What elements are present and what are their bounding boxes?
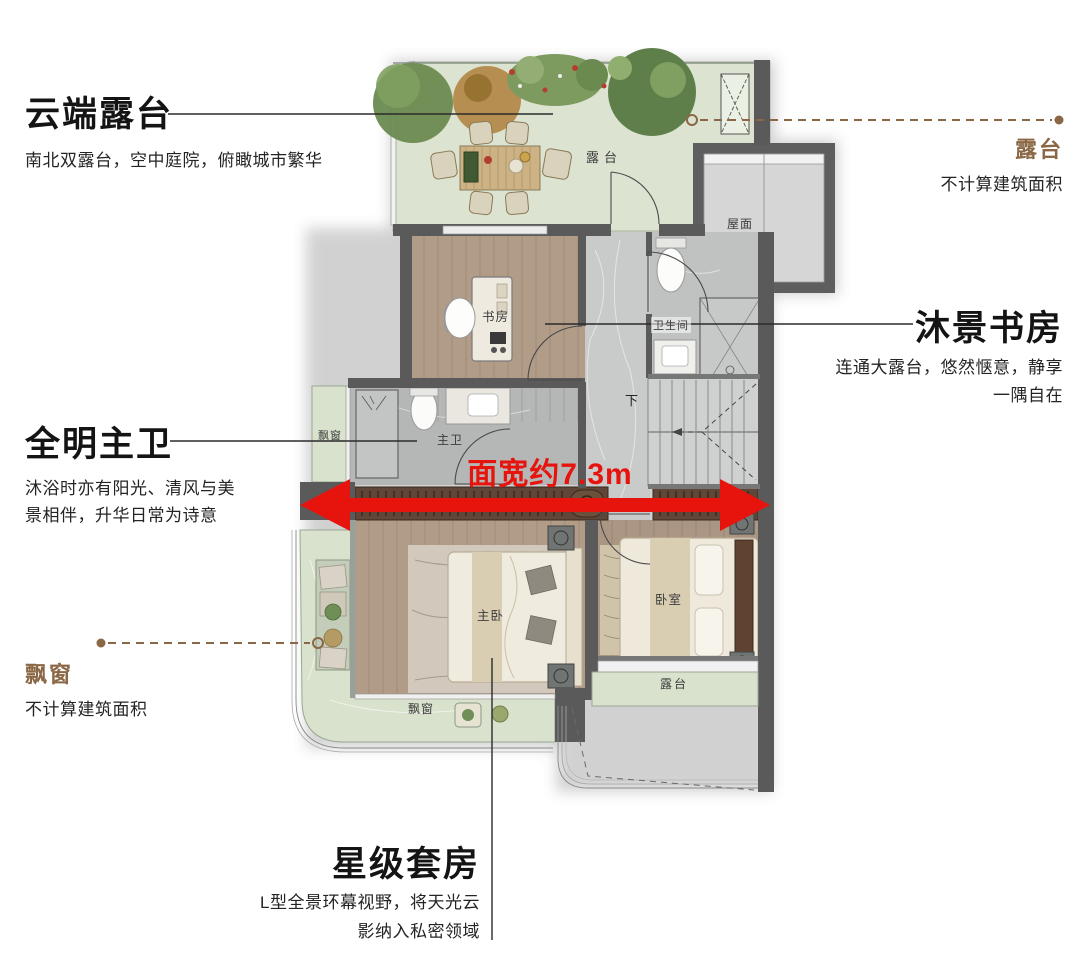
terrace-top-title: 云端露台 <box>25 86 173 137</box>
study-desc-1: 连通大露台，悠然惬意，静享 <box>836 353 1064 378</box>
suite-desc-2: 影纳入私密领域 <box>358 917 481 942</box>
room-label-bay-bottom: 飘窗 <box>408 700 434 717</box>
room-label-terrace: 露台 <box>586 147 622 166</box>
room-label-bay-left: 飘窗 <box>318 427 342 443</box>
room-label-roof: 屋面 <box>727 215 753 232</box>
suite-desc-1: L型全景环幕视野，将天光云 <box>260 888 480 913</box>
room-label-master-bedroom: 主卧 <box>477 605 504 624</box>
room-label-bedroom: 卧室 <box>655 589 682 608</box>
bay-window-desc: 不计算建筑面积 <box>25 695 148 720</box>
bay-window-title: 飘窗 <box>25 657 73 689</box>
terrace-top-desc: 南北双露台，空中庭院，俯瞰城市繁华 <box>25 146 323 171</box>
suite-title: 星级套房 <box>332 836 480 887</box>
master-bath-desc-1: 沐浴时亦有阳光、清风与美 <box>25 474 235 499</box>
terrace-right-title: 露台 <box>1015 132 1063 164</box>
skylight-symbol <box>721 74 749 134</box>
terrace-right-desc: 不计算建筑面积 <box>941 170 1064 195</box>
study-title: 沐景书房 <box>915 300 1063 351</box>
master-bath-title: 全明主卫 <box>25 416 173 467</box>
room-label-bathroom: 卫生间 <box>651 317 691 333</box>
master-bath-desc-2: 景相伴，升华日常为诗意 <box>25 501 218 526</box>
dimension-label: 面宽约7.3m <box>430 449 670 493</box>
floorplan-page: 云端露台 南北双露台，空中庭院，俯瞰城市繁华 露台 不计算建筑面积 沐景书房 连… <box>0 0 1080 977</box>
room-label-terrace-bottom: 露台 <box>660 675 688 692</box>
room-label-master-bath: 主卫 <box>437 431 463 448</box>
room-label-stairs-down: 下 <box>625 390 639 409</box>
study-desc-2: 一隅自在 <box>993 381 1063 406</box>
room-label-study: 书房 <box>482 306 509 325</box>
